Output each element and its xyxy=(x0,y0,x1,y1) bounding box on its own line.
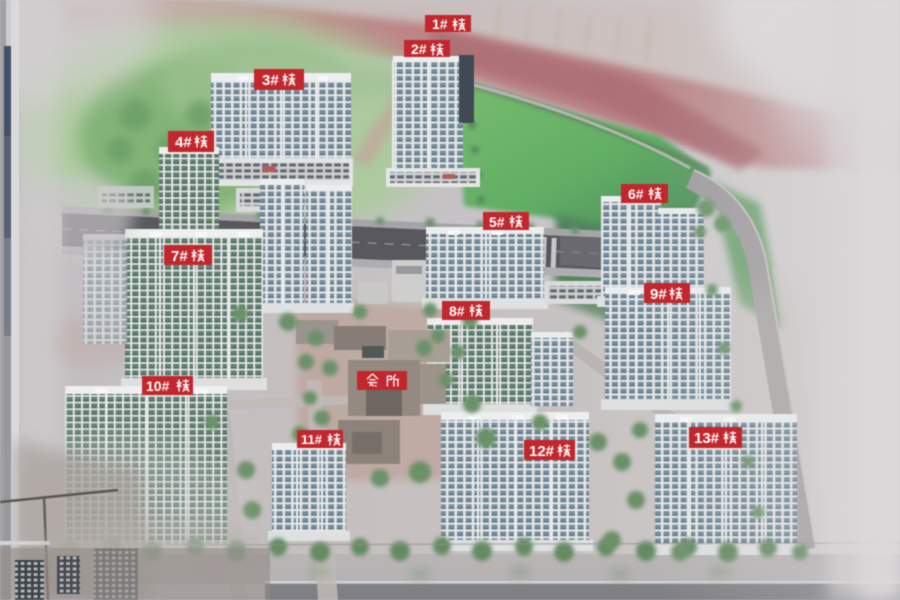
svg-text:12#: 12# xyxy=(529,443,555,460)
svg-text:4#: 4# xyxy=(175,134,192,151)
svg-text:2#: 2# xyxy=(411,41,427,57)
svg-text:6#: 6# xyxy=(628,186,644,202)
svg-text:7#: 7# xyxy=(171,248,188,265)
svg-text:11#: 11# xyxy=(301,432,323,447)
svg-text:8#: 8# xyxy=(449,303,465,319)
svg-text:9#: 9# xyxy=(650,286,667,303)
svg-text:10#: 10# xyxy=(146,378,170,394)
svg-text:1#: 1# xyxy=(432,16,448,32)
svg-text:3#: 3# xyxy=(262,72,279,89)
svg-text:5#: 5# xyxy=(489,214,505,230)
svg-text:13#: 13# xyxy=(694,430,720,447)
